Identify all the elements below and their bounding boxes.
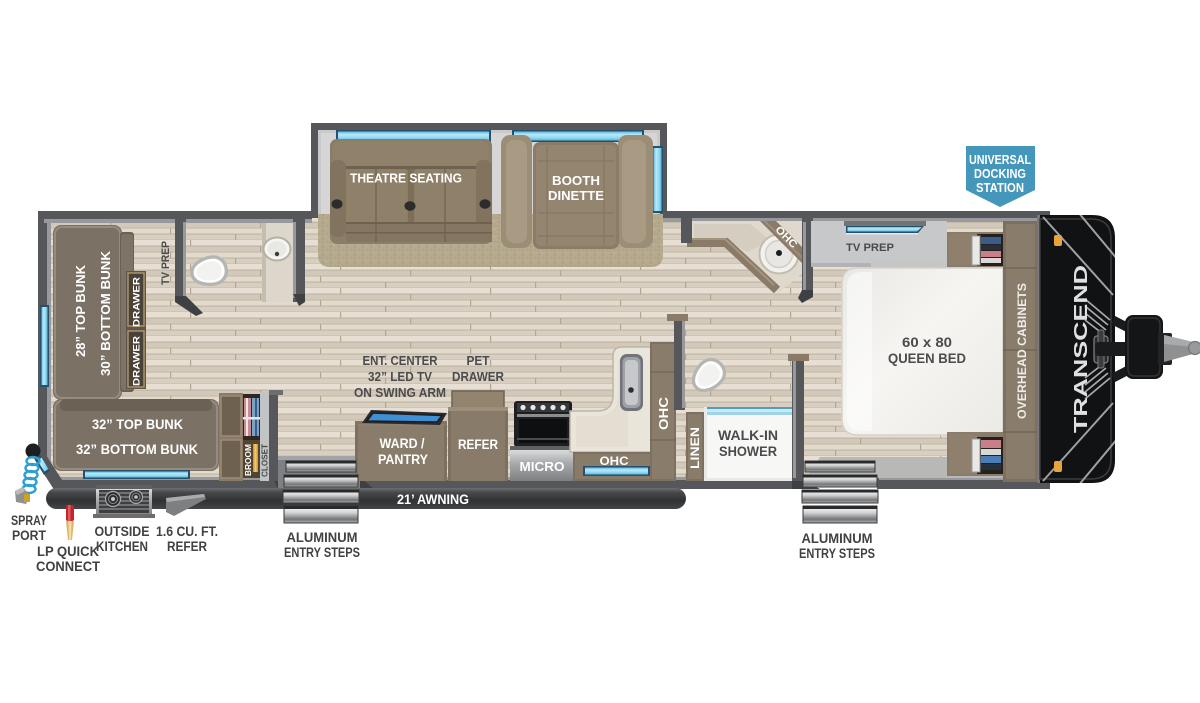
svg-text:UNIVERSAL: UNIVERSAL xyxy=(969,152,1031,167)
svg-text:60 x 80: 60 x 80 xyxy=(902,334,952,350)
svg-text:CLOSET: CLOSET xyxy=(260,443,270,477)
svg-text:DOCKING: DOCKING xyxy=(974,166,1026,181)
svg-text:ENTRY STEPS: ENTRY STEPS xyxy=(284,545,360,560)
svg-text:THEATRE SEATING: THEATRE SEATING xyxy=(350,171,462,186)
svg-text:DRAWER: DRAWER xyxy=(132,335,142,386)
svg-text:28” TOP BUNK: 28” TOP BUNK xyxy=(73,264,88,357)
svg-text:WALK-IN: WALK-IN xyxy=(718,428,778,443)
svg-text:21’ AWNING: 21’ AWNING xyxy=(397,491,469,507)
svg-text:TV PREP: TV PREP xyxy=(846,242,894,254)
svg-text:32” LED TV: 32” LED TV xyxy=(368,369,432,384)
svg-text:LINEN: LINEN xyxy=(688,427,702,469)
svg-text:LP QUICK: LP QUICK xyxy=(37,544,99,559)
svg-text:ALUMINUM: ALUMINUM xyxy=(287,530,358,545)
svg-text:OUTSIDE: OUTSIDE xyxy=(95,524,150,539)
svg-text:TRANSCEND: TRANSCEND xyxy=(1071,265,1091,433)
svg-text:MICRO: MICRO xyxy=(520,459,565,474)
svg-text:PANTRY: PANTRY xyxy=(378,452,428,467)
svg-text:SPRAY: SPRAY xyxy=(11,513,47,528)
svg-text:STATION: STATION xyxy=(976,180,1024,195)
svg-text:QUEEN BED: QUEEN BED xyxy=(888,350,966,366)
svg-text:PET: PET xyxy=(467,353,490,368)
svg-text:REFER: REFER xyxy=(167,539,207,554)
svg-text:OVERHEAD CABINETS: OVERHEAD CABINETS xyxy=(1017,283,1029,419)
svg-text:WARD /: WARD / xyxy=(380,436,425,451)
svg-text:KITCHEN: KITCHEN xyxy=(96,539,148,554)
svg-text:ENTRY STEPS: ENTRY STEPS xyxy=(799,546,875,561)
svg-text:OHC: OHC xyxy=(600,454,629,468)
svg-text:DINETTE: DINETTE xyxy=(548,188,604,203)
svg-text:DRAWER: DRAWER xyxy=(452,369,505,384)
svg-text:BROOM: BROOM xyxy=(243,444,253,476)
svg-text:ON SWING ARM: ON SWING ARM xyxy=(354,385,446,400)
svg-text:ALUMINUM: ALUMINUM xyxy=(802,531,873,546)
svg-text:CONNECT: CONNECT xyxy=(36,559,101,574)
svg-text:32” BOTTOM BUNK: 32” BOTTOM BUNK xyxy=(76,441,198,457)
svg-text:30” BOTTOM BUNK: 30” BOTTOM BUNK xyxy=(98,250,113,376)
svg-text:SHOWER: SHOWER xyxy=(719,444,777,459)
svg-text:OHC: OHC xyxy=(656,396,671,430)
svg-text:TV PREP: TV PREP xyxy=(160,241,172,285)
svg-text:DRAWER: DRAWER xyxy=(132,276,142,327)
svg-text:PORT: PORT xyxy=(12,528,47,543)
svg-text:ENT. CENTER: ENT. CENTER xyxy=(363,353,439,368)
svg-text:BOOTH: BOOTH xyxy=(552,173,600,188)
svg-text:32” TOP BUNK: 32” TOP BUNK xyxy=(92,416,183,432)
svg-text:REFER: REFER xyxy=(458,437,498,452)
svg-text:1.6 CU. FT.: 1.6 CU. FT. xyxy=(156,524,218,539)
